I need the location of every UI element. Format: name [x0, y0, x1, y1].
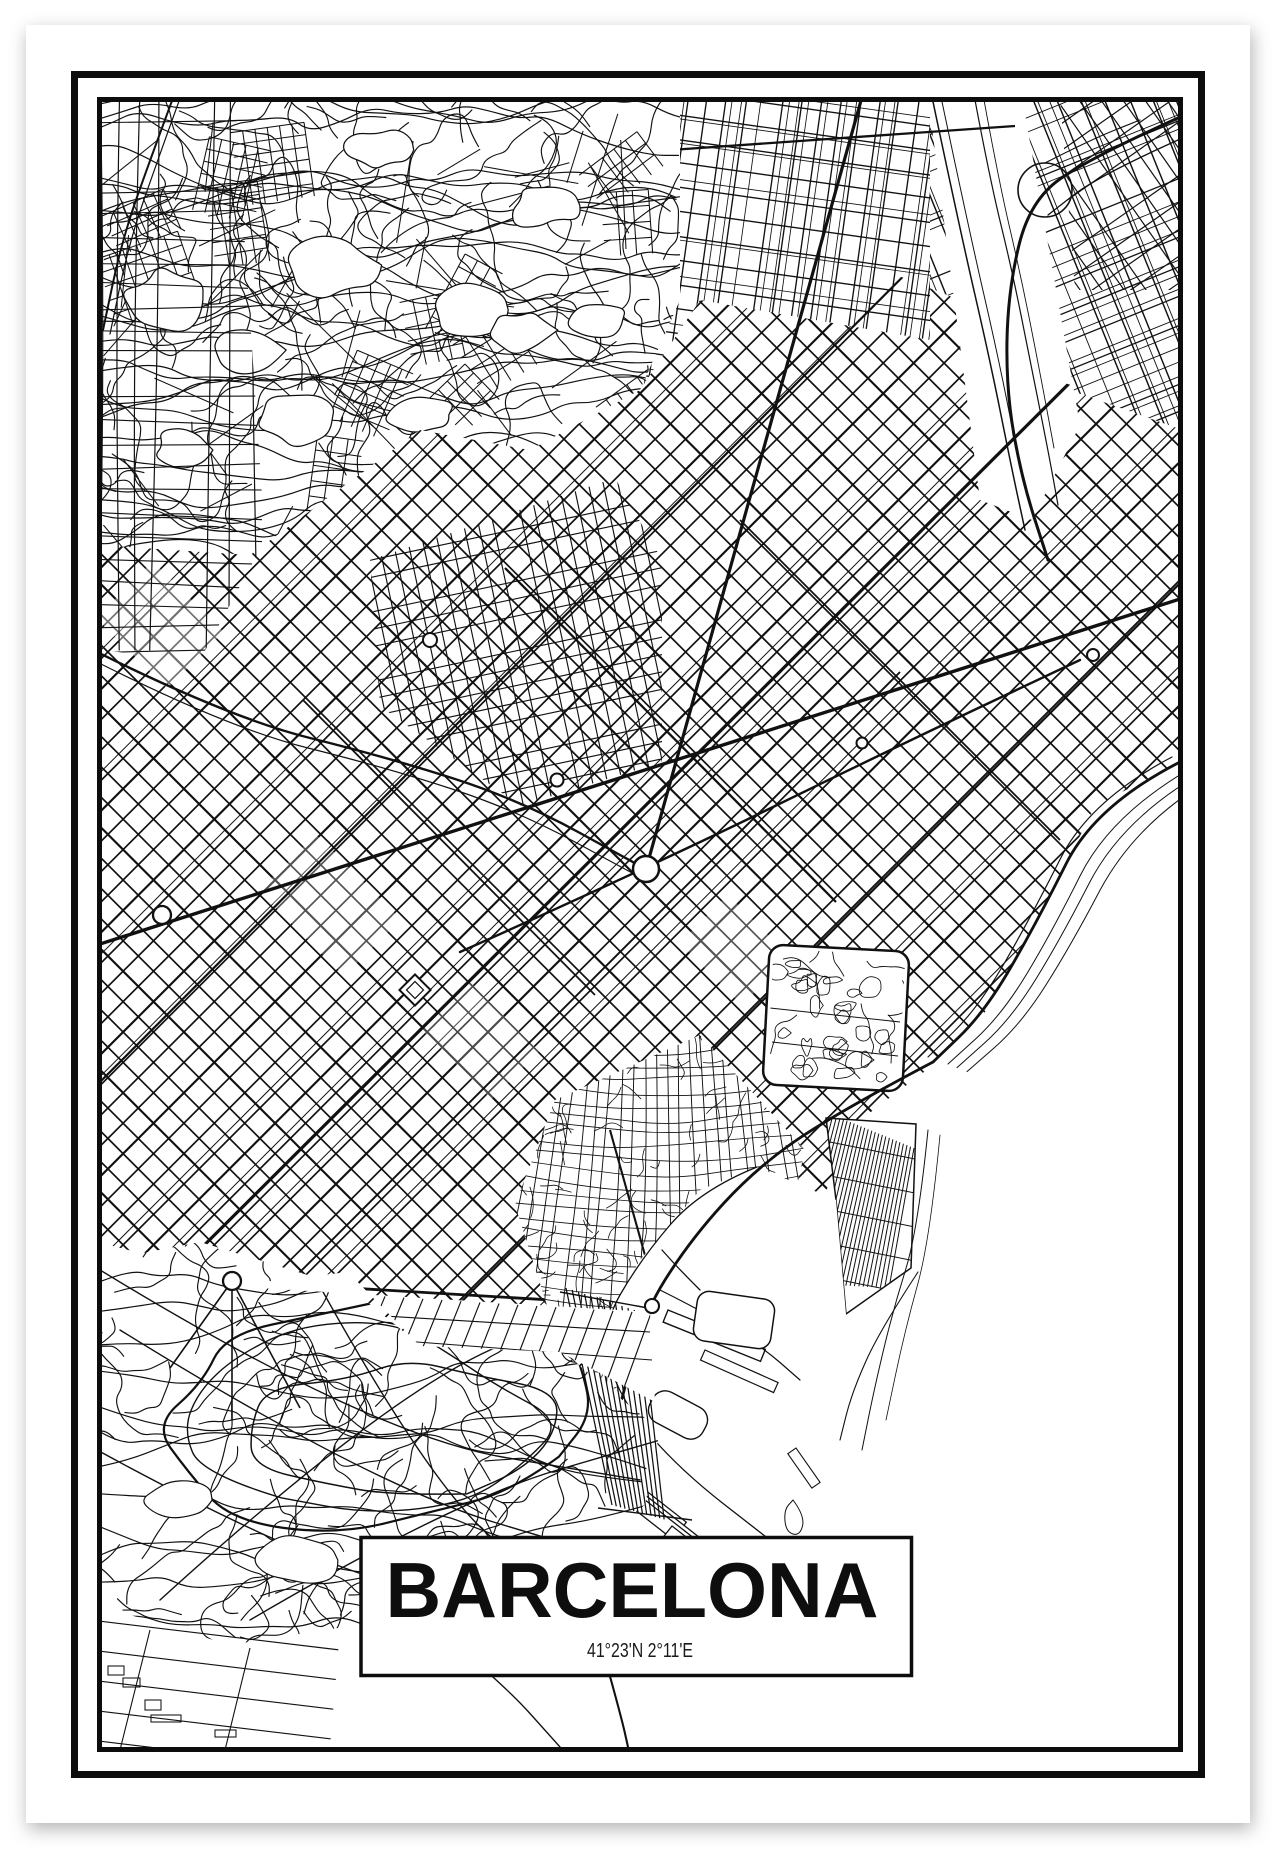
svg-text:BARCELONA: BARCELONA: [386, 1546, 879, 1634]
svg-text:41°23'N 2°11'E: 41°23'N 2°11'E: [587, 1640, 693, 1662]
